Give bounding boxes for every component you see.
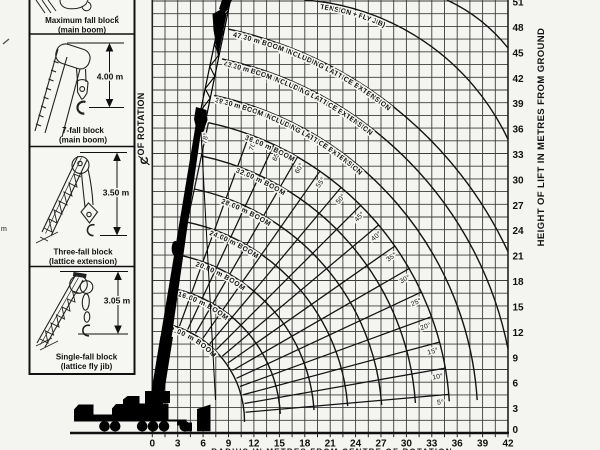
svg-text:24: 24 (513, 226, 525, 237)
svg-text:(lattice extension): (lattice extension) (49, 257, 117, 266)
svg-text:5°: 5° (437, 398, 445, 407)
svg-text:51: 51 (513, 0, 525, 9)
svg-text:6: 6 (200, 439, 206, 450)
svg-text:OF ROTATION: OF ROTATION (136, 93, 146, 156)
svg-text:(main boom): (main boom) (59, 136, 107, 145)
svg-text:3: 3 (513, 404, 519, 415)
svg-text:Maximum fall block: Maximum fall block (45, 16, 119, 25)
svg-text:39: 39 (477, 439, 489, 450)
svg-text:(main boom): (main boom) (58, 26, 106, 35)
svg-text:3: 3 (175, 439, 181, 450)
svg-text:12: 12 (513, 328, 525, 339)
svg-text:0: 0 (513, 425, 519, 436)
svg-text:9: 9 (513, 353, 519, 364)
svg-text:18: 18 (513, 277, 525, 288)
svg-text:7-fall block: 7-fall block (62, 126, 104, 135)
svg-text:Three-fall block: Three-fall block (53, 248, 113, 257)
svg-text:3.50 m: 3.50 m (103, 188, 130, 198)
svg-text:42: 42 (502, 439, 514, 450)
svg-text:HEIGHT OF LIFT IN METRES FROM: HEIGHT OF LIFT IN METRES FROM GROUND (536, 28, 547, 247)
svg-text:36: 36 (452, 439, 464, 450)
svg-text:(lattice fly jib): (lattice fly jib) (61, 362, 113, 371)
svg-text:15: 15 (513, 302, 525, 313)
svg-text:27: 27 (513, 201, 525, 212)
svg-text:42: 42 (513, 74, 525, 85)
svg-text:Single-fall block: Single-fall block (56, 353, 118, 362)
svg-text:45: 45 (513, 48, 525, 59)
svg-text:6: 6 (513, 379, 519, 390)
svg-text:0: 0 (150, 439, 156, 450)
svg-text:21: 21 (513, 252, 525, 263)
svg-text:3.05 m: 3.05 m (104, 296, 131, 306)
svg-text:m: m (1, 226, 7, 233)
svg-text:4.00 m: 4.00 m (97, 72, 124, 82)
svg-text:36: 36 (513, 125, 525, 136)
svg-text:33: 33 (513, 150, 525, 161)
svg-text:30: 30 (513, 175, 525, 186)
svg-text:39: 39 (513, 99, 525, 110)
svg-text:48: 48 (513, 23, 525, 34)
